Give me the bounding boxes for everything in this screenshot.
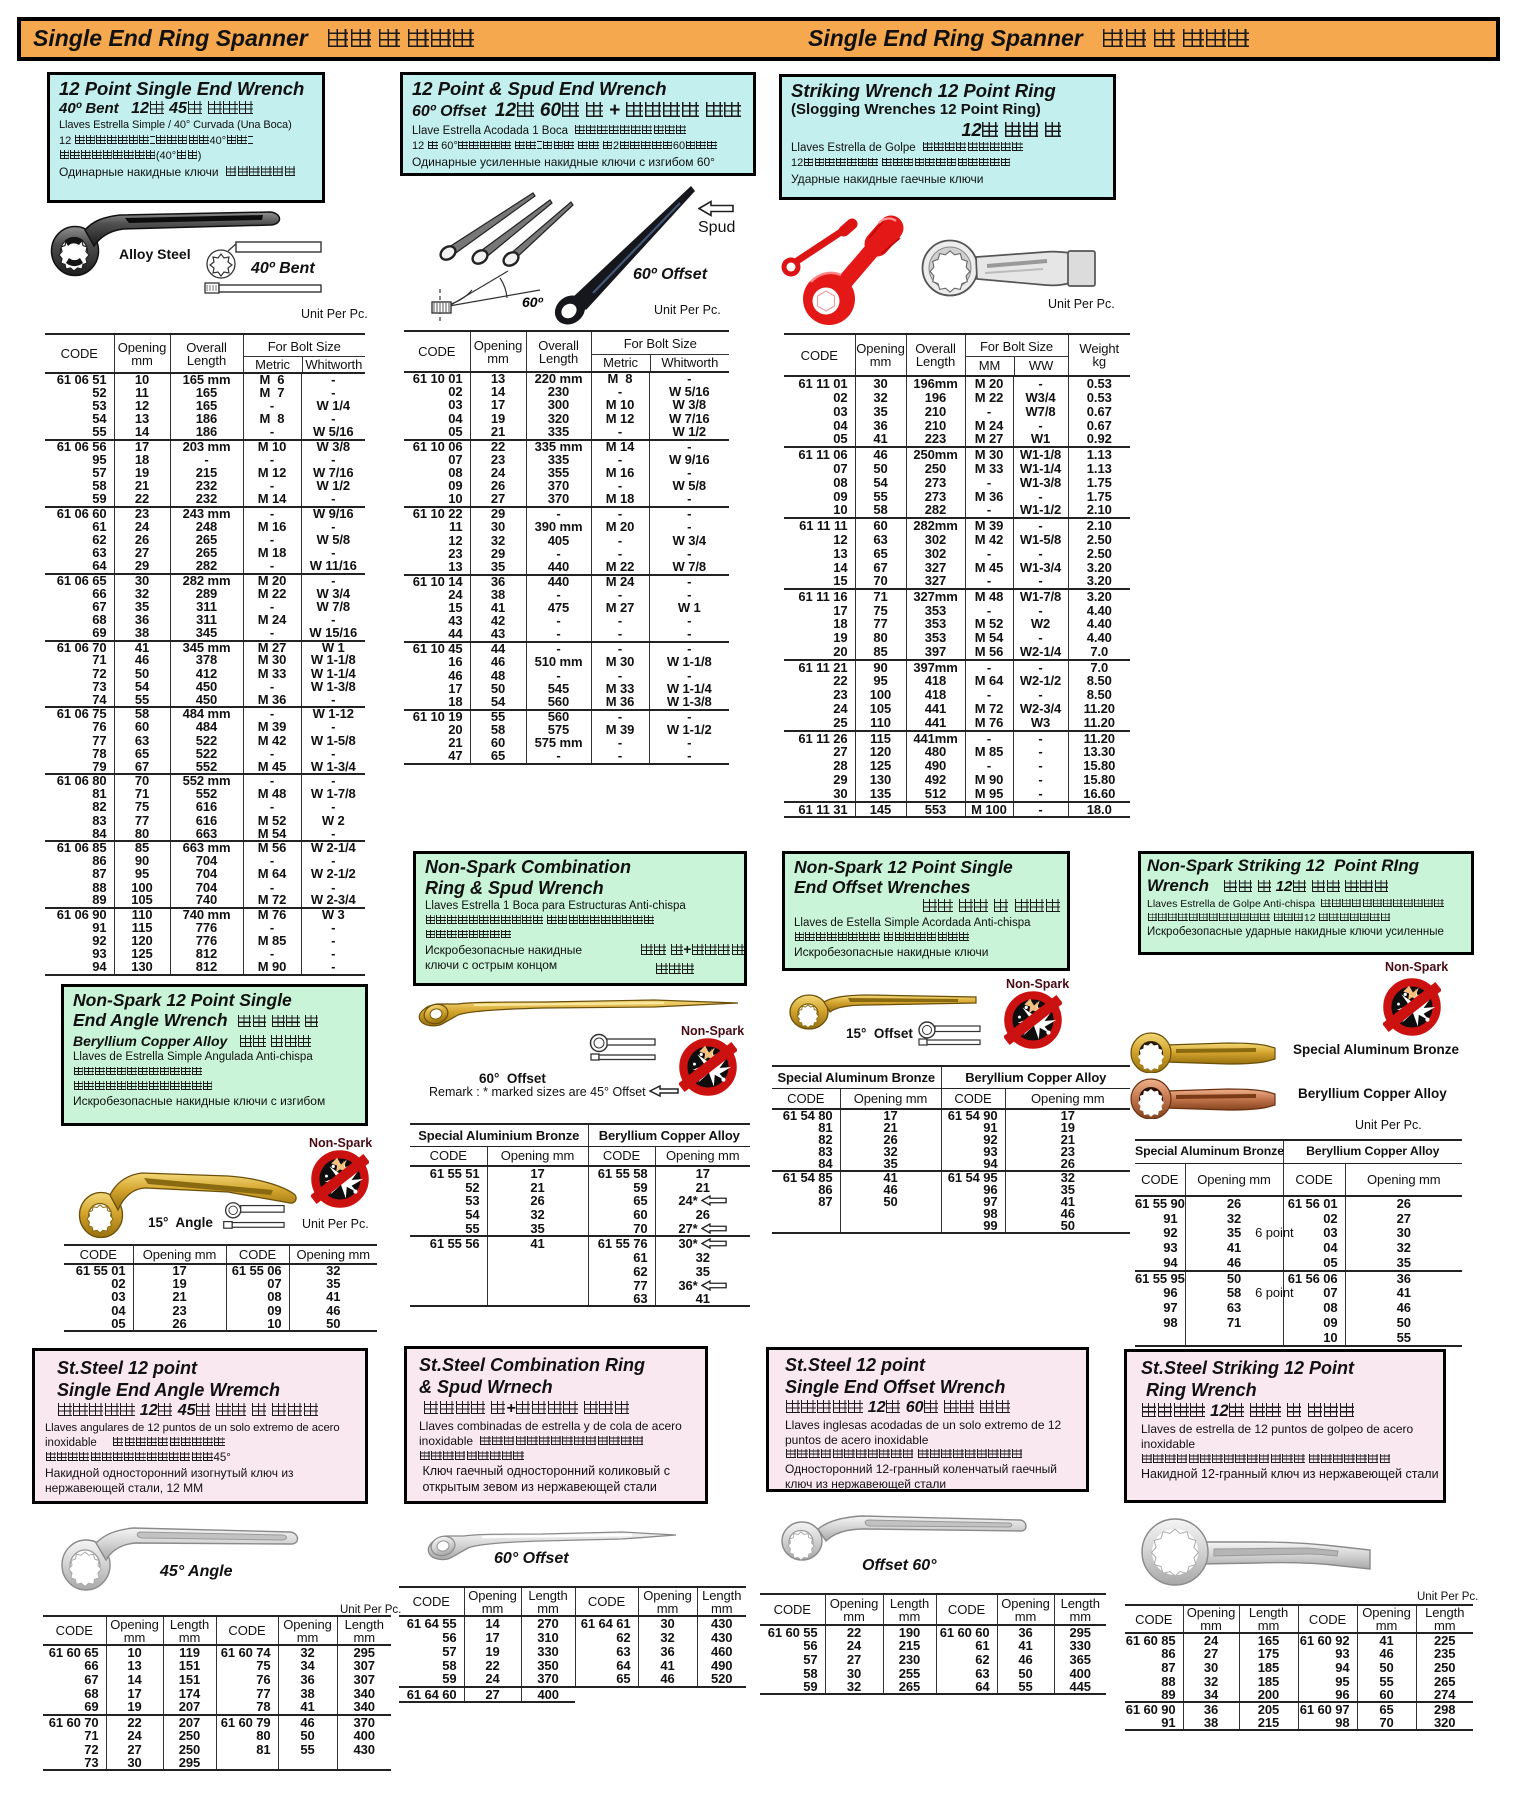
svg-text:60º: 60º — [522, 294, 544, 310]
